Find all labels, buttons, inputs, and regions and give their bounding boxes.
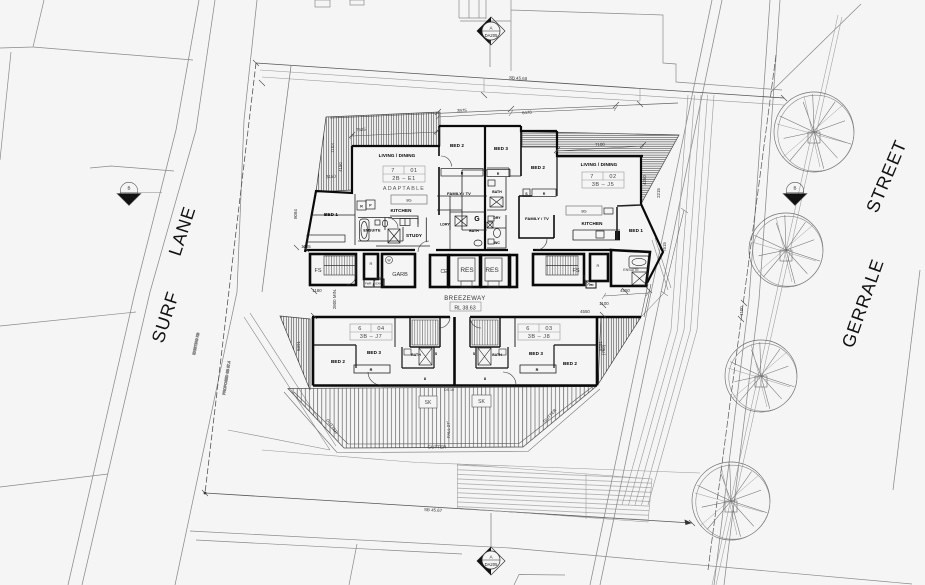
svg-text:R: R: [461, 172, 464, 176]
svg-text:WC: WC: [494, 241, 500, 245]
svg-text:4150: 4150: [338, 162, 343, 172]
svg-text:LIVING / DINING: LIVING / DINING: [581, 162, 618, 167]
svg-text:4550: 4550: [620, 288, 630, 293]
svg-text:GUTTER: GUTTER: [428, 445, 448, 450]
svg-text:1135: 1135: [301, 244, 311, 249]
svg-text:1103: 1103: [330, 143, 335, 153]
svg-text:02: 02: [609, 174, 616, 180]
svg-text:4350: 4350: [642, 175, 647, 185]
svg-text:DS 10: DS 10: [444, 388, 454, 392]
svg-text:5391: 5391: [296, 341, 301, 351]
svg-text:LIVING / DINING: LIVING / DINING: [379, 153, 416, 158]
svg-text:3150: 3150: [326, 174, 337, 180]
svg-text:BED 1: BED 1: [324, 212, 338, 217]
svg-text:DA205: DA205: [123, 194, 136, 199]
svg-text:BREEZEWAY: BREEZEWAY: [444, 296, 486, 302]
svg-text:03: 03: [545, 326, 552, 332]
svg-text:LDRY: LDRY: [440, 223, 450, 227]
svg-text:ENSUITE: ENSUITE: [623, 268, 639, 272]
svg-text:FALL 27°: FALL 27°: [446, 421, 451, 438]
svg-text:7: 7: [590, 174, 594, 180]
svg-text:BATH: BATH: [469, 229, 479, 233]
svg-text:8G: 8G: [406, 198, 411, 203]
svg-text:DA306: DA306: [789, 194, 802, 199]
svg-text:BED 3: BED 3: [367, 350, 381, 355]
svg-text:SK: SK: [478, 399, 485, 405]
svg-text:BED 2: BED 2: [450, 143, 464, 148]
svg-text:CE: CE: [441, 269, 449, 275]
svg-text:R: R: [597, 263, 600, 268]
svg-text:7525: 7525: [356, 127, 367, 132]
svg-text:BATH: BATH: [492, 190, 502, 194]
svg-text:R: R: [536, 368, 539, 372]
svg-text:(750): (750): [601, 344, 606, 355]
svg-text:8G: 8G: [581, 209, 586, 214]
svg-text:DRY: DRY: [493, 216, 501, 220]
svg-text:7515: 7515: [662, 242, 667, 252]
svg-text:B: B: [794, 186, 797, 191]
svg-text:2215: 2215: [656, 188, 661, 198]
svg-text:1100: 1100: [739, 306, 744, 316]
svg-text:EXH: EXH: [376, 282, 382, 286]
svg-text:8: 8: [484, 377, 486, 381]
svg-text:1100: 1100: [599, 301, 609, 306]
svg-text:B: B: [128, 186, 131, 191]
svg-text:4550: 4550: [580, 309, 590, 314]
svg-text:3975: 3975: [457, 108, 468, 113]
svg-text:BED 2: BED 2: [331, 359, 345, 364]
svg-text:ADAPTABLE: ADAPTABLE: [383, 186, 425, 192]
svg-text:G: G: [474, 216, 480, 223]
svg-text:BATH: BATH: [492, 353, 502, 357]
svg-text:3B – J7: 3B – J7: [360, 334, 382, 340]
svg-text:ENSUITE: ENSUITE: [363, 229, 381, 233]
svg-text:FAMILY / TV: FAMILY / TV: [525, 216, 549, 221]
svg-text:BATH: BATH: [411, 353, 421, 357]
svg-text:3B – J8: 3B – J8: [528, 334, 550, 340]
svg-text:RES: RES: [460, 267, 474, 274]
svg-text:STUDY: STUDY: [406, 233, 422, 238]
svg-text:DA205: DA205: [485, 33, 498, 38]
svg-text:SB 45.67: SB 45.67: [424, 507, 443, 513]
svg-text:RL 38.63: RL 38.63: [454, 305, 475, 311]
svg-text:KITCHEN: KITCHEN: [581, 221, 603, 226]
svg-text:FS: FS: [314, 268, 321, 274]
svg-text:2800 MIN.: 2800 MIN.: [332, 289, 337, 309]
svg-text:R: R: [370, 368, 373, 372]
svg-text:SK: SK: [425, 400, 432, 406]
svg-text:FAMILY / TV: FAMILY / TV: [447, 191, 471, 196]
svg-text:KITCHEN: KITCHEN: [390, 208, 412, 213]
svg-text:7: 7: [391, 168, 395, 174]
svg-text:01: 01: [410, 168, 417, 174]
svg-text:BED 2: BED 2: [563, 361, 577, 366]
svg-text:2B – E1: 2B – E1: [392, 176, 415, 182]
svg-text:BED 3: BED 3: [529, 351, 543, 356]
svg-text:6: 6: [526, 326, 530, 332]
svg-text:BED 3: BED 3: [494, 146, 508, 151]
svg-text:BED 1: BED 1: [629, 228, 643, 233]
svg-text:FS: FS: [572, 268, 579, 274]
svg-text:8: 8: [424, 377, 426, 381]
svg-text:R: R: [497, 172, 500, 176]
svg-text:GARB: GARB: [392, 272, 408, 278]
svg-text:6: 6: [358, 326, 362, 332]
svg-text:8084: 8084: [293, 209, 298, 219]
svg-text:R: R: [370, 261, 373, 266]
svg-text:FWR: FWR: [365, 282, 371, 286]
svg-text:R: R: [360, 205, 363, 209]
svg-text:04: 04: [377, 326, 384, 332]
svg-text:R: R: [543, 192, 546, 196]
svg-text:RES: RES: [485, 267, 499, 274]
svg-text:DA205: DA205: [485, 562, 498, 567]
svg-text:3B – J5: 3B – J5: [592, 182, 614, 188]
svg-text:BED 2: BED 2: [531, 165, 545, 170]
svg-text:7100: 7100: [595, 142, 606, 147]
